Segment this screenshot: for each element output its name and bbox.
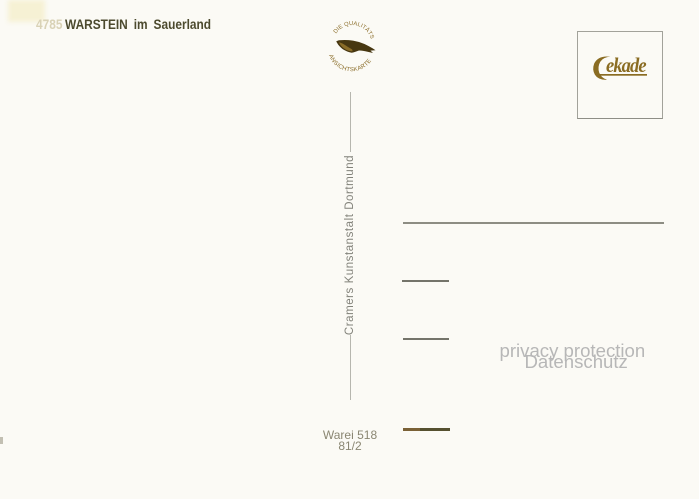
svg-text:ANSICHTSKARTE: ANSICHTSKARTE <box>327 54 373 74</box>
svg-text:DIE QUALITÄTS: DIE QUALITÄTS <box>333 21 375 40</box>
svg-text:ekade: ekade <box>606 54 647 77</box>
